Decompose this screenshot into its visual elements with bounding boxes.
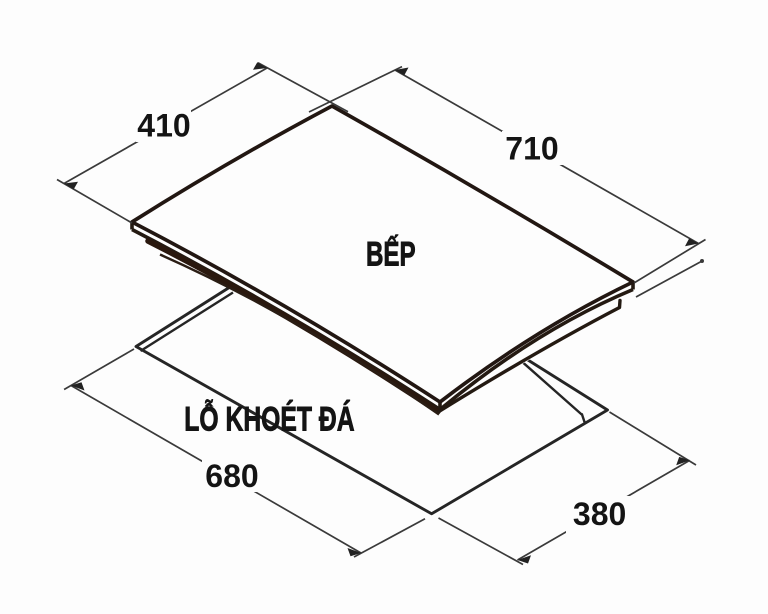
svg-text:710: 710 xyxy=(505,131,558,167)
svg-text:380: 380 xyxy=(573,496,626,532)
svg-text:680: 680 xyxy=(205,458,258,494)
svg-text:LỖ KHOÉT ĐÁ: LỖ KHOÉT ĐÁ xyxy=(184,400,354,439)
svg-text:410: 410 xyxy=(137,108,190,144)
svg-text:BẾP: BẾP xyxy=(366,234,416,273)
